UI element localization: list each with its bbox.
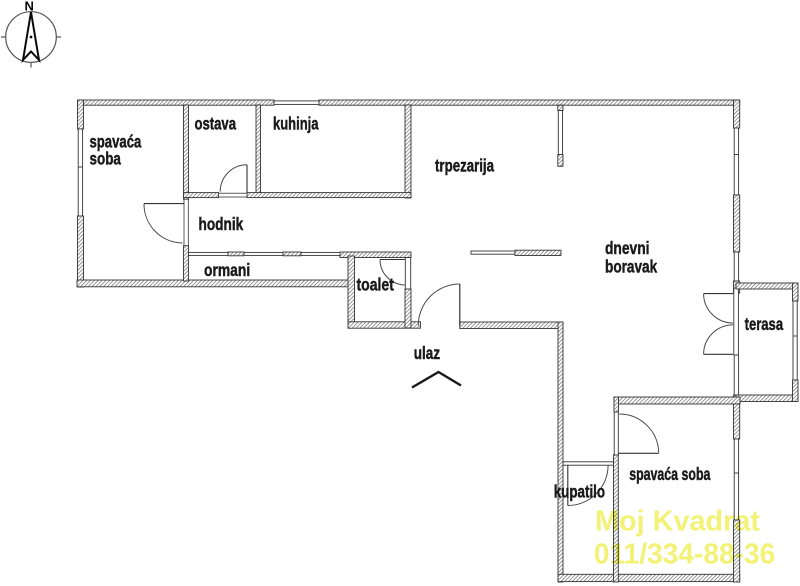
svg-text:terasa: terasa [745,314,784,334]
svg-text:ulaz: ulaz [414,343,440,363]
svg-text:hodnik: hodnik [199,214,244,234]
svg-text:Moj Kvadrat: Moj Kvadrat [595,506,760,538]
svg-text:soba: soba [90,149,122,169]
svg-text:kupatilo: kupatilo [554,482,605,502]
svg-text:N: N [25,0,34,14]
svg-text:kuhinja: kuhinja [273,113,319,133]
svg-text:ormani: ormani [204,260,250,280]
svg-text:boravak: boravak [605,256,657,276]
svg-text:dnevni: dnevni [605,238,650,258]
svg-text:trpezarija: trpezarija [435,155,494,175]
svg-text:011/334-88-36: 011/334-88-36 [594,539,776,571]
svg-text:spavaća soba: spavaća soba [629,464,710,484]
svg-text:ostava: ostava [195,114,237,134]
svg-text:toalet: toalet [357,274,395,294]
